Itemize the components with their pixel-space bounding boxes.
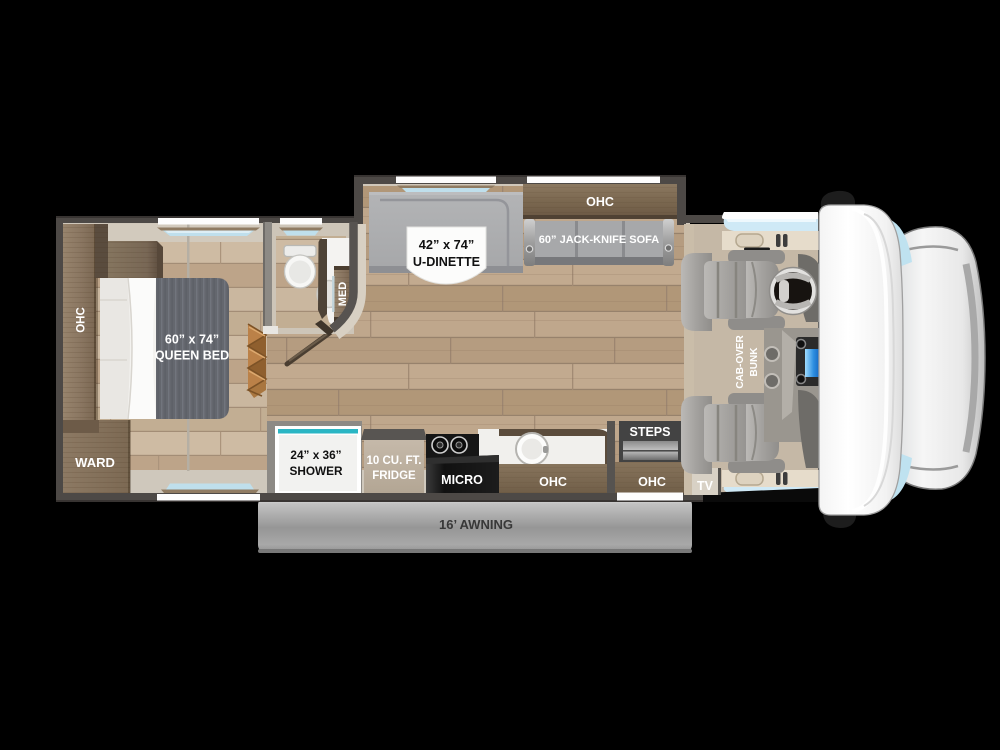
svg-text:24” x 36”: 24” x 36” <box>290 448 341 462</box>
svg-text:WARD: WARD <box>75 455 115 470</box>
svg-text:BUNK: BUNK <box>749 347 760 377</box>
svg-text:FRIDGE: FRIDGE <box>372 470 416 482</box>
svg-text:OHC: OHC <box>586 195 614 209</box>
svg-text:U-DINETTE: U-DINETTE <box>413 255 480 269</box>
svg-text:OHC: OHC <box>539 475 567 489</box>
svg-text:TV: TV <box>697 479 714 493</box>
svg-text:60” x 74”: 60” x 74” <box>165 333 219 347</box>
svg-text:OHC: OHC <box>638 475 666 489</box>
svg-text:16’ AWNING: 16’ AWNING <box>439 517 513 532</box>
svg-text:OHC: OHC <box>76 307 88 333</box>
svg-text:CAB-OVER: CAB-OVER <box>735 335 746 389</box>
svg-text:60” JACK-KNIFE SOFA: 60” JACK-KNIFE SOFA <box>539 234 659 246</box>
svg-text:STEPS: STEPS <box>630 425 671 439</box>
svg-text:10 CU. FT.: 10 CU. FT. <box>367 455 422 467</box>
svg-text:QUEEN BED: QUEEN BED <box>155 349 229 363</box>
svg-text:MICRO: MICRO <box>441 473 483 487</box>
svg-text:MED: MED <box>337 282 349 307</box>
svg-text:42” x 74”: 42” x 74” <box>419 237 475 252</box>
svg-text:SHOWER: SHOWER <box>289 464 343 478</box>
